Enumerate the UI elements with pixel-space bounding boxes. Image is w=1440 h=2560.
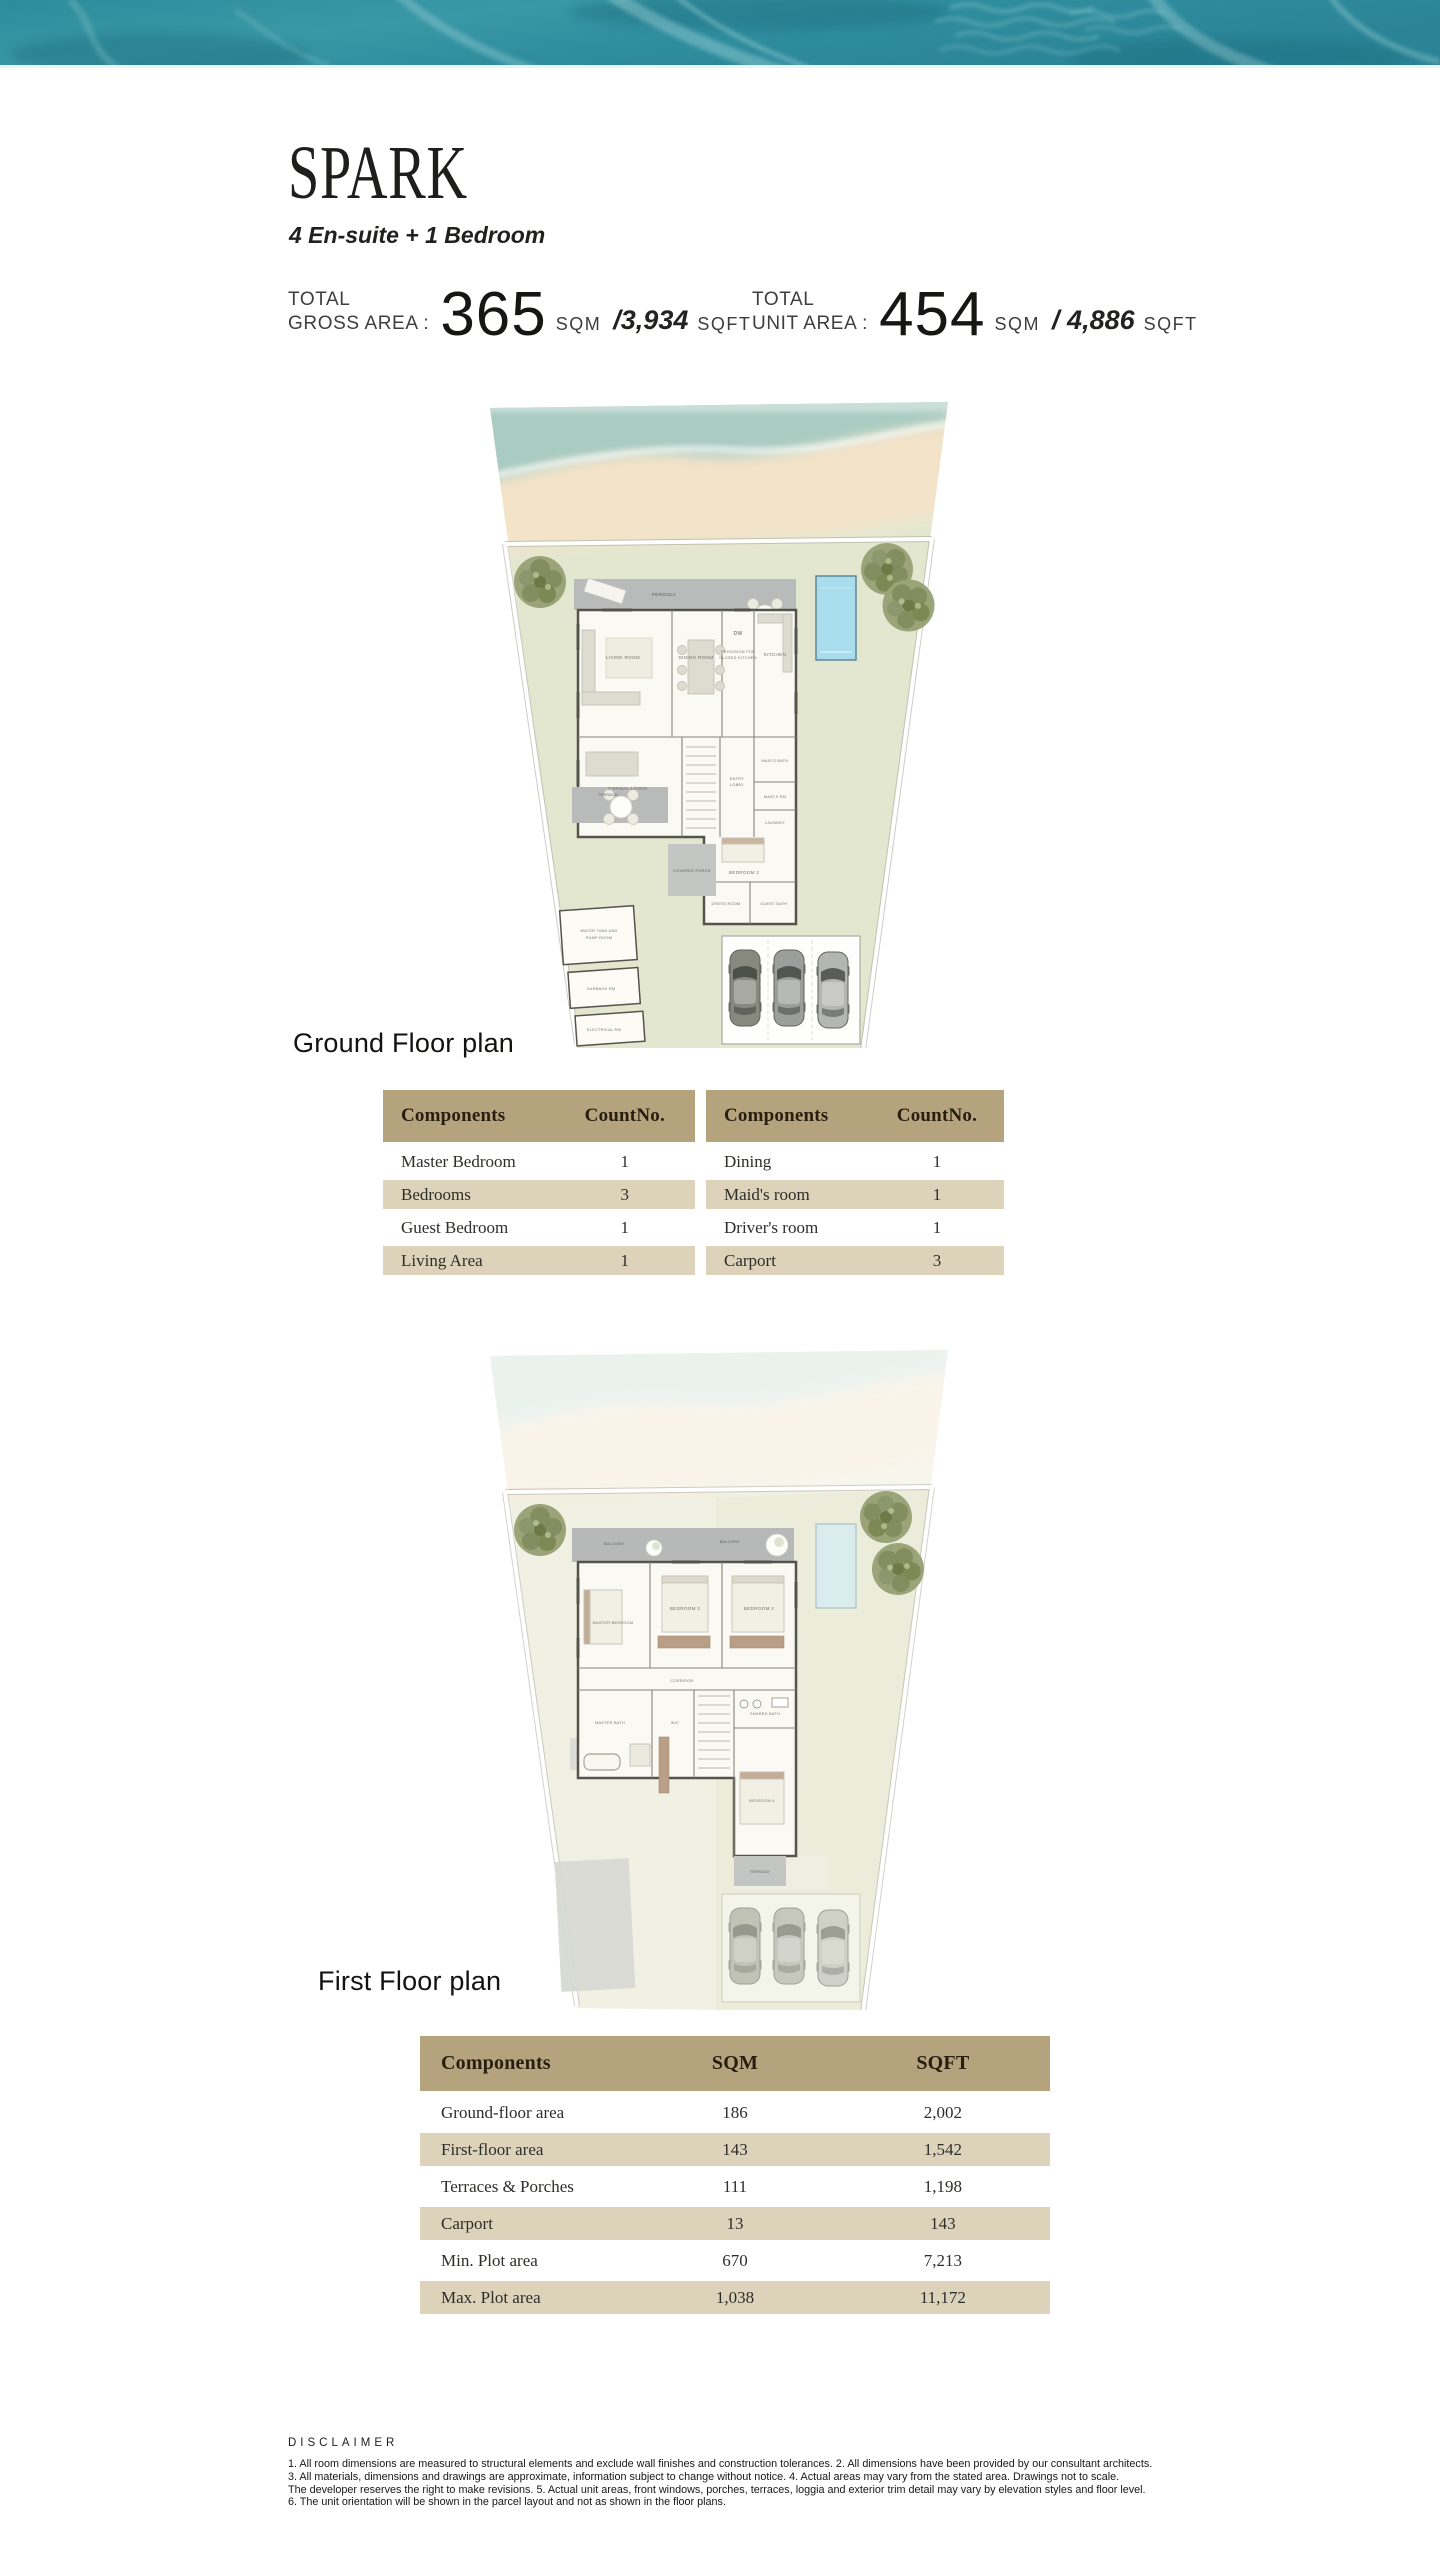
- brochure-page: SPARK 4 En-suite + 1 Bedroom TOTAL GROSS…: [0, 0, 1440, 2560]
- svg-text:DRESS ROOM: DRESS ROOM: [712, 902, 741, 906]
- svg-text:ELECTRICAL RM: ELECTRICAL RM: [587, 1028, 621, 1032]
- svg-text:LIVING ROOM: LIVING ROOM: [606, 655, 640, 660]
- car-icon: [773, 950, 806, 1026]
- gross-area-sqft-value: /3,934: [613, 305, 688, 336]
- areas-table: Components SQM SQFT Ground-floor area186…: [420, 2036, 1050, 2316]
- table-row: Terraces & Porches1111,198: [420, 2168, 1050, 2205]
- svg-text:TERRACE: TERRACE: [750, 1870, 770, 1874]
- svg-text:BEDROOM 4: BEDROOM 4: [749, 1799, 775, 1803]
- svg-text:SHARED BATH: SHARED BATH: [750, 1712, 780, 1716]
- svg-text:CORRIDOR: CORRIDOR: [670, 1679, 693, 1683]
- unit-area-value: 454: [879, 291, 985, 338]
- column-header: Components: [383, 1105, 555, 1127]
- unit-area-label: TOTAL UNIT AREA :: [752, 288, 868, 335]
- pool: [816, 1524, 856, 1608]
- svg-text:BEDROOM 2: BEDROOM 2: [729, 870, 759, 875]
- svg-text:DW: DW: [734, 631, 743, 637]
- tree: [514, 1504, 566, 1556]
- svg-text:CLOSED KITCHEN: CLOSED KITCHEN: [719, 656, 757, 660]
- svg-text:MAID'S BATH: MAID'S BATH: [762, 759, 789, 763]
- svg-text:PERGOLA: PERGOLA: [652, 592, 677, 597]
- column-header: SQM: [634, 2052, 836, 2075]
- svg-text:PUMP ROOM: PUMP ROOM: [586, 936, 612, 940]
- table-row: Min. Plot area6707,213: [420, 2242, 1050, 2279]
- ground-floor-plan-illustration: PERGOLA LIVING ROOM DINING ROOM PROVISIO…: [482, 392, 950, 1048]
- table-row: Driver's room1: [706, 1211, 1004, 1244]
- gross-area-stat: TOTAL GROSS AREA : 365 SQM /3,934 SQFT: [288, 288, 751, 335]
- table-row: Carport3: [706, 1244, 1004, 1277]
- gross-area-value: 365: [440, 291, 546, 338]
- first-floor-caption: First Floor plan: [318, 1966, 501, 1997]
- svg-text:BEDROOM 2: BEDROOM 2: [744, 1606, 774, 1611]
- column-header: Components: [706, 1105, 870, 1127]
- components-table-right: Components CountNo. Dining1 Maid's room1…: [706, 1090, 1004, 1277]
- carport: [722, 936, 860, 1044]
- unit-area-stat: TOTAL UNIT AREA : 454 SQM / 4,886 SQFT: [752, 288, 1198, 335]
- svg-text:WIC: WIC: [671, 1721, 679, 1725]
- svg-text:LOBBY: LOBBY: [730, 783, 744, 787]
- svg-text:COVERED PORCH: COVERED PORCH: [673, 869, 710, 873]
- svg-text:KITCHEN: KITCHEN: [764, 652, 786, 657]
- svg-text:GARBAGE RM: GARBAGE RM: [587, 987, 616, 991]
- disclaimer-heading: DISCLAIMER: [288, 2437, 1152, 2449]
- svg-text:PROVISION FOR: PROVISION FOR: [721, 650, 755, 654]
- components-table-left: Components CountNo. Master Bedroom1 Bedr…: [383, 1090, 695, 1277]
- column-header: CountNo.: [555, 1105, 695, 1127]
- svg-text:DINING ROOM: DINING ROOM: [679, 655, 714, 660]
- table-row: Master Bedroom1: [383, 1145, 695, 1178]
- table-row: Guest Bedroom1: [383, 1211, 695, 1244]
- svg-text:TERRACE: TERRACE: [598, 793, 618, 797]
- page-subtitle: 4 En-suite + 1 Bedroom: [289, 222, 545, 249]
- table-row: Ground-floor area1862,002: [420, 2094, 1050, 2131]
- unit-area-sqft-unit: SQFT: [1144, 314, 1198, 335]
- disclaimer: DISCLAIMER 1. All room dimensions are me…: [288, 2437, 1152, 2509]
- unit-area-sqft-value: / 4,886: [1052, 305, 1135, 336]
- disclaimer-text: 1. All room dimensions are measured to s…: [288, 2458, 1152, 2509]
- svg-text:LAUNDRY: LAUNDRY: [765, 821, 785, 825]
- column-header: SQFT: [836, 2052, 1050, 2075]
- svg-text:ENTRY: ENTRY: [730, 777, 744, 781]
- gross-area-unit: SQM: [556, 314, 602, 335]
- table-row: Max. Plot area1,03811,172: [420, 2279, 1050, 2316]
- table-row: Dining1: [706, 1145, 1004, 1178]
- svg-text:GUEST BATH: GUEST BATH: [761, 902, 788, 906]
- svg-text:MASTER BATH: MASTER BATH: [595, 1721, 625, 1725]
- svg-text:FORMAL LIVING: FORMAL LIVING: [608, 786, 647, 791]
- svg-text:BALCONY: BALCONY: [604, 1542, 624, 1546]
- gross-area-sqft-unit: SQFT: [697, 314, 751, 335]
- svg-text:BALCONY: BALCONY: [720, 1540, 740, 1544]
- svg-text:BEDROOM 3: BEDROOM 3: [670, 1606, 700, 1611]
- svg-text:MASTER BEDROOM: MASTER BEDROOM: [593, 1621, 634, 1625]
- car-icon: [817, 952, 850, 1028]
- terrace: [572, 787, 668, 825]
- table-row: Maid's room1: [706, 1178, 1004, 1211]
- first-floor-plan-illustration: BALCONY BALCONY MASTER BEDROOM BEDROOM 3…: [482, 1338, 950, 2010]
- pool: [816, 576, 856, 660]
- tree: [514, 556, 566, 608]
- page-title: SPARK: [288, 134, 468, 212]
- column-header: Components: [420, 2052, 634, 2075]
- svg-text:MAID'S RM: MAID'S RM: [764, 795, 786, 799]
- table-row: Bedrooms3: [383, 1178, 695, 1211]
- unit-area-unit: SQM: [995, 314, 1041, 335]
- table-row: Living Area1: [383, 1244, 695, 1277]
- water-banner-image: [0, 0, 1440, 68]
- column-header: CountNo.: [870, 1105, 1004, 1127]
- table-row: Carport13143: [420, 2205, 1050, 2242]
- gross-area-label: TOTAL GROSS AREA :: [288, 288, 429, 335]
- ground-floor-caption: Ground Floor plan: [293, 1028, 514, 1059]
- car-icon: [729, 950, 762, 1026]
- table-row: First-floor area1431,542: [420, 2131, 1050, 2168]
- svg-text:WATER TANK AND: WATER TANK AND: [580, 929, 617, 933]
